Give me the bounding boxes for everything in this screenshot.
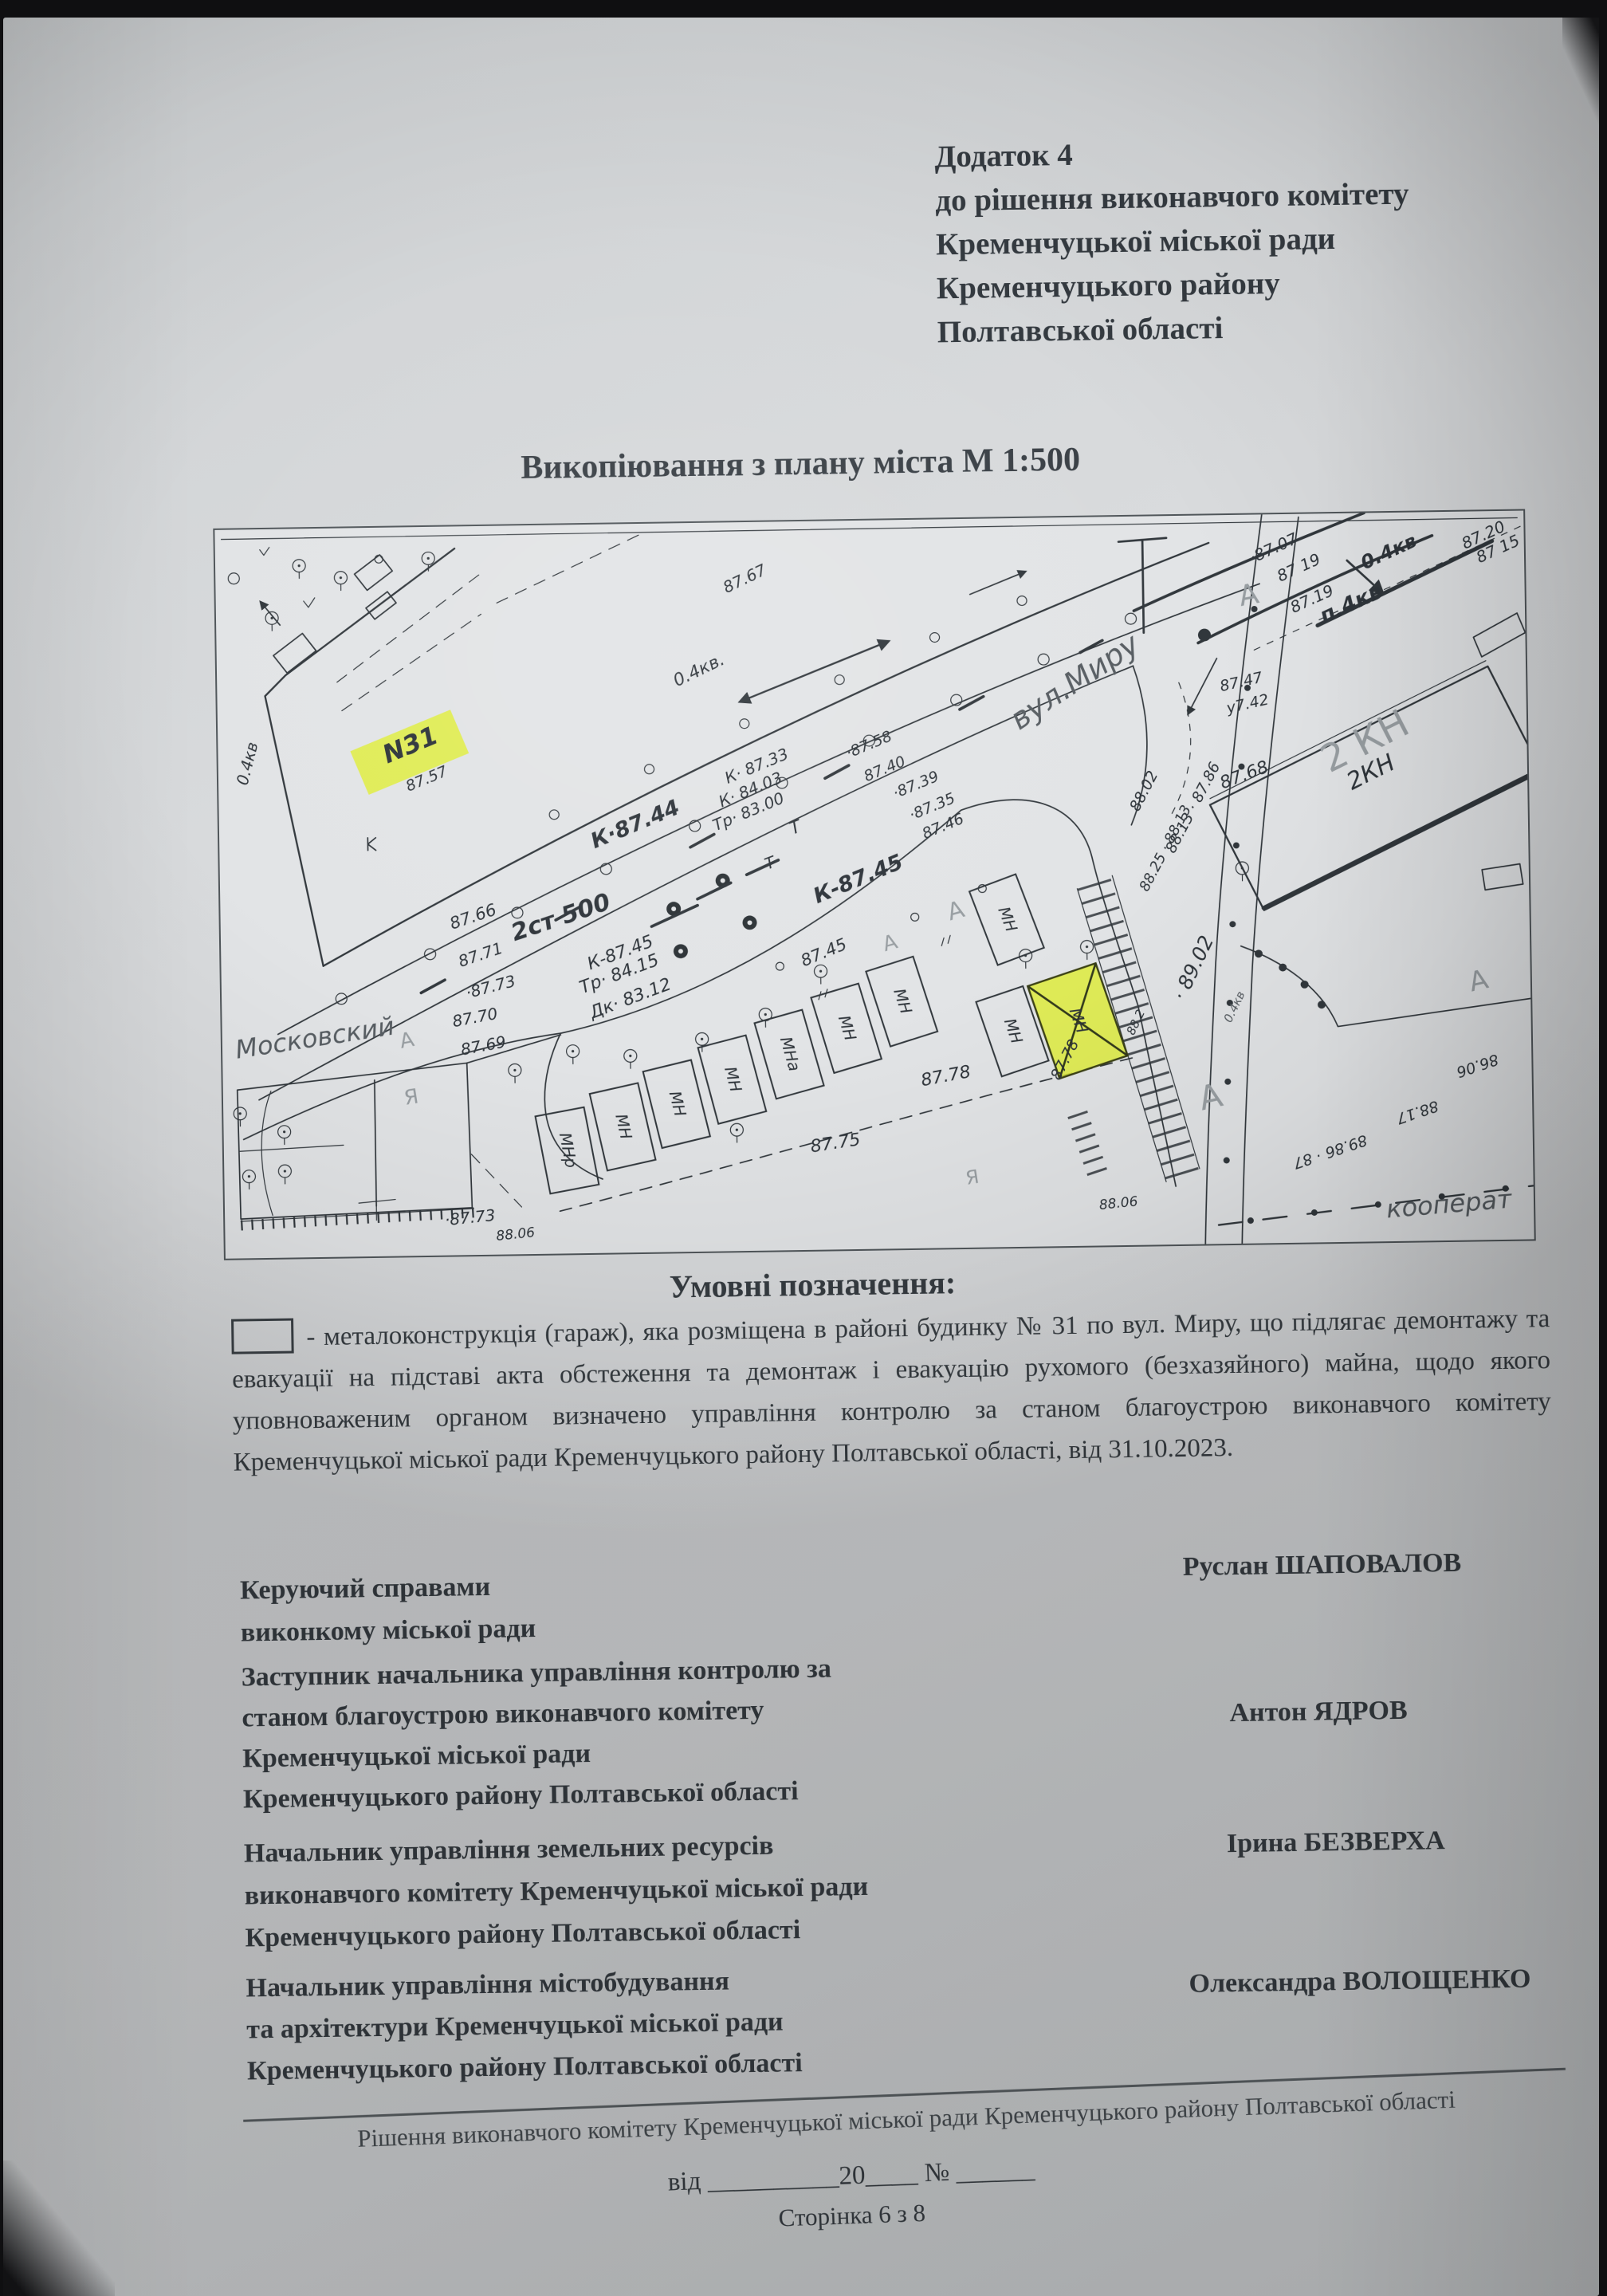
signature-title-line: Кременчуцького району Полтавської област… <box>245 1908 869 1960</box>
signature-title-line: Кременчуцького району Полтавської област… <box>243 1771 834 1820</box>
signature-title-4: Начальник управління містобудування та а… <box>246 1960 803 2092</box>
garage-label: МН <box>890 986 915 1016</box>
signature-title-2: Заступник начальника управління контролю… <box>241 1649 833 1820</box>
signature-name-2: Антон ЯДРОВ <box>1229 1696 1408 1728</box>
garage-rect: МН <box>969 875 1044 965</box>
garage-rect: МНр <box>536 1107 599 1193</box>
map-annotation: 88.25 · 88.13 <box>1136 803 1195 894</box>
garage-label: МН <box>835 1013 860 1043</box>
signature-name-4: Олександра ВОЛОЩЕНКО <box>1189 1964 1531 1999</box>
paper-sheet: Додаток 4 до рішення виконавчого комітет… <box>3 18 1599 2296</box>
map-annotation: ·87.58 <box>843 727 894 761</box>
map-annotation: Т <box>762 852 779 873</box>
map-annotation: кооперат <box>1385 1184 1515 1225</box>
city-plan-map-frame: МНрМНМНМНМНаМНМНМНМНМНN3187.570.4кв87.67… <box>213 509 1535 1260</box>
garage-rect: МНа <box>755 1010 824 1099</box>
city-plan-map: МНрМНМНМНМНаМНМНМНМНМНN3187.570.4кв87.67… <box>214 511 1534 1259</box>
trees <box>226 540 1253 1189</box>
map-annotation: 87.40 <box>861 753 908 785</box>
street-junction-marks <box>1118 511 1528 818</box>
garage-label: МН <box>994 904 1020 934</box>
garage-rect: МН <box>590 1083 656 1171</box>
map-annotation: 87.71 <box>456 939 505 971</box>
map-annotation: Я <box>403 1085 421 1111</box>
garage-label: МН <box>1000 1016 1026 1047</box>
right-road <box>1195 514 1310 1244</box>
legend-text: - металоконструкція (гараж), яка розміще… <box>232 1304 1551 1477</box>
map-annotation: 87.47 <box>1218 669 1264 695</box>
footer-page-number: Сторінка 6 з 8 <box>628 2193 1075 2238</box>
map-annotation: · 89.02 <box>1168 932 1219 1004</box>
map-annotation: А <box>1236 577 1261 613</box>
garage-label: МНр <box>556 1131 580 1170</box>
garage-rect: МН <box>866 957 937 1047</box>
signature-title-line: Кременчуцького району Полтавської област… <box>247 2042 803 2092</box>
page-title: Викопіювання з плану міста М 1:500 <box>0 433 1604 495</box>
garage-rect: МН <box>811 984 881 1073</box>
signature-name-1: Руслан ШАПОВАЛОВ <box>1182 1548 1461 1582</box>
map-annotation: 0.4кв <box>1220 989 1247 1024</box>
map-annotation: 87.70 <box>451 1005 500 1031</box>
map-annotation: А <box>1466 964 1491 998</box>
map-annotation: 87 19 <box>1274 550 1323 585</box>
header-line: Кременчуцької міської ради <box>936 216 1410 267</box>
map-annotation: К-87.45 <box>810 850 907 909</box>
map-annotation: 86.06 <box>1454 1050 1501 1080</box>
garage-label: МН <box>666 1089 690 1118</box>
garage-rect: МН <box>698 1036 767 1124</box>
garage-label: МН <box>721 1065 745 1095</box>
map-annotation: 0.4кв <box>234 740 262 787</box>
map-annotation: А <box>1195 1075 1226 1119</box>
appendix-header-block: Додаток 4 до рішення виконавчого комітет… <box>934 128 1411 355</box>
map-annotation: 87.45 <box>798 934 850 970</box>
footer-date-number-blanks: від __________20____ № ______ <box>628 2153 1075 2199</box>
garage-rectangle-symbol <box>231 1319 294 1354</box>
map-annotation: 0.4кв <box>1358 529 1420 574</box>
map-annotation: 87.67 <box>720 560 769 596</box>
header-line: Полтавської області <box>937 304 1411 355</box>
map-annotation: 89.86 · 87 <box>1291 1131 1369 1173</box>
map-annotation: 0.4кв. <box>670 650 728 691</box>
signature-title-1: Керуючий справами виконкому міської ради <box>240 1565 536 1653</box>
map-annotation: у7.42 <box>1224 691 1271 717</box>
header-line: Додаток 4 <box>934 128 1409 179</box>
map-annotation: А <box>944 895 968 926</box>
map-annotation: А <box>398 1028 416 1054</box>
signature-title-3: Начальник управління земельних ресурсів … <box>244 1823 870 1960</box>
map-annotation: К·87.44 <box>587 795 684 853</box>
map-annotation: Т <box>787 816 805 839</box>
signature-title-line: виконкому міської ради <box>240 1607 536 1653</box>
map-annotation: 87.75 <box>809 1130 862 1157</box>
map-annotation: 87.69 <box>459 1032 508 1059</box>
map-annotation: А <box>880 930 901 957</box>
highlighted-garage: МН <box>1027 963 1127 1079</box>
signature-title-line: Керуючий справами <box>240 1565 536 1611</box>
map-annotation: 88.17 <box>1394 1097 1441 1127</box>
map-annotation: вул.Миру <box>1004 626 1146 737</box>
map-annotation: ·87.73 <box>464 972 517 1002</box>
garage-label: МНа <box>776 1035 803 1074</box>
map-annotation: 87.66 <box>447 900 499 934</box>
legend-paragraph: - металоконструкція (гараж), яка розміще… <box>231 1298 1552 1484</box>
header-line: Кременчуцького району <box>937 260 1411 311</box>
map-annotation: Я <box>964 1166 980 1189</box>
garage-label: МН <box>611 1112 635 1141</box>
map-annotation: 88.06 <box>1098 1193 1138 1213</box>
map-annotation: 88.06 <box>495 1224 535 1244</box>
garage-rect: МН <box>643 1060 710 1148</box>
map-annotation: 87.78 <box>919 1062 972 1091</box>
map-annotation: 88.02 <box>1126 768 1162 814</box>
map-annotation: Московский <box>234 1011 397 1065</box>
document-content: Додаток 4 до рішення виконавчого комітет… <box>0 6 1607 2296</box>
signature-name-3: Ірина БЕЗВЕРХА <box>1227 1826 1445 1859</box>
header-line: до рішення виконавчого комітету <box>935 172 1409 223</box>
photographed-document-page: Додаток 4 до рішення виконавчого комітет… <box>0 0 1607 2296</box>
